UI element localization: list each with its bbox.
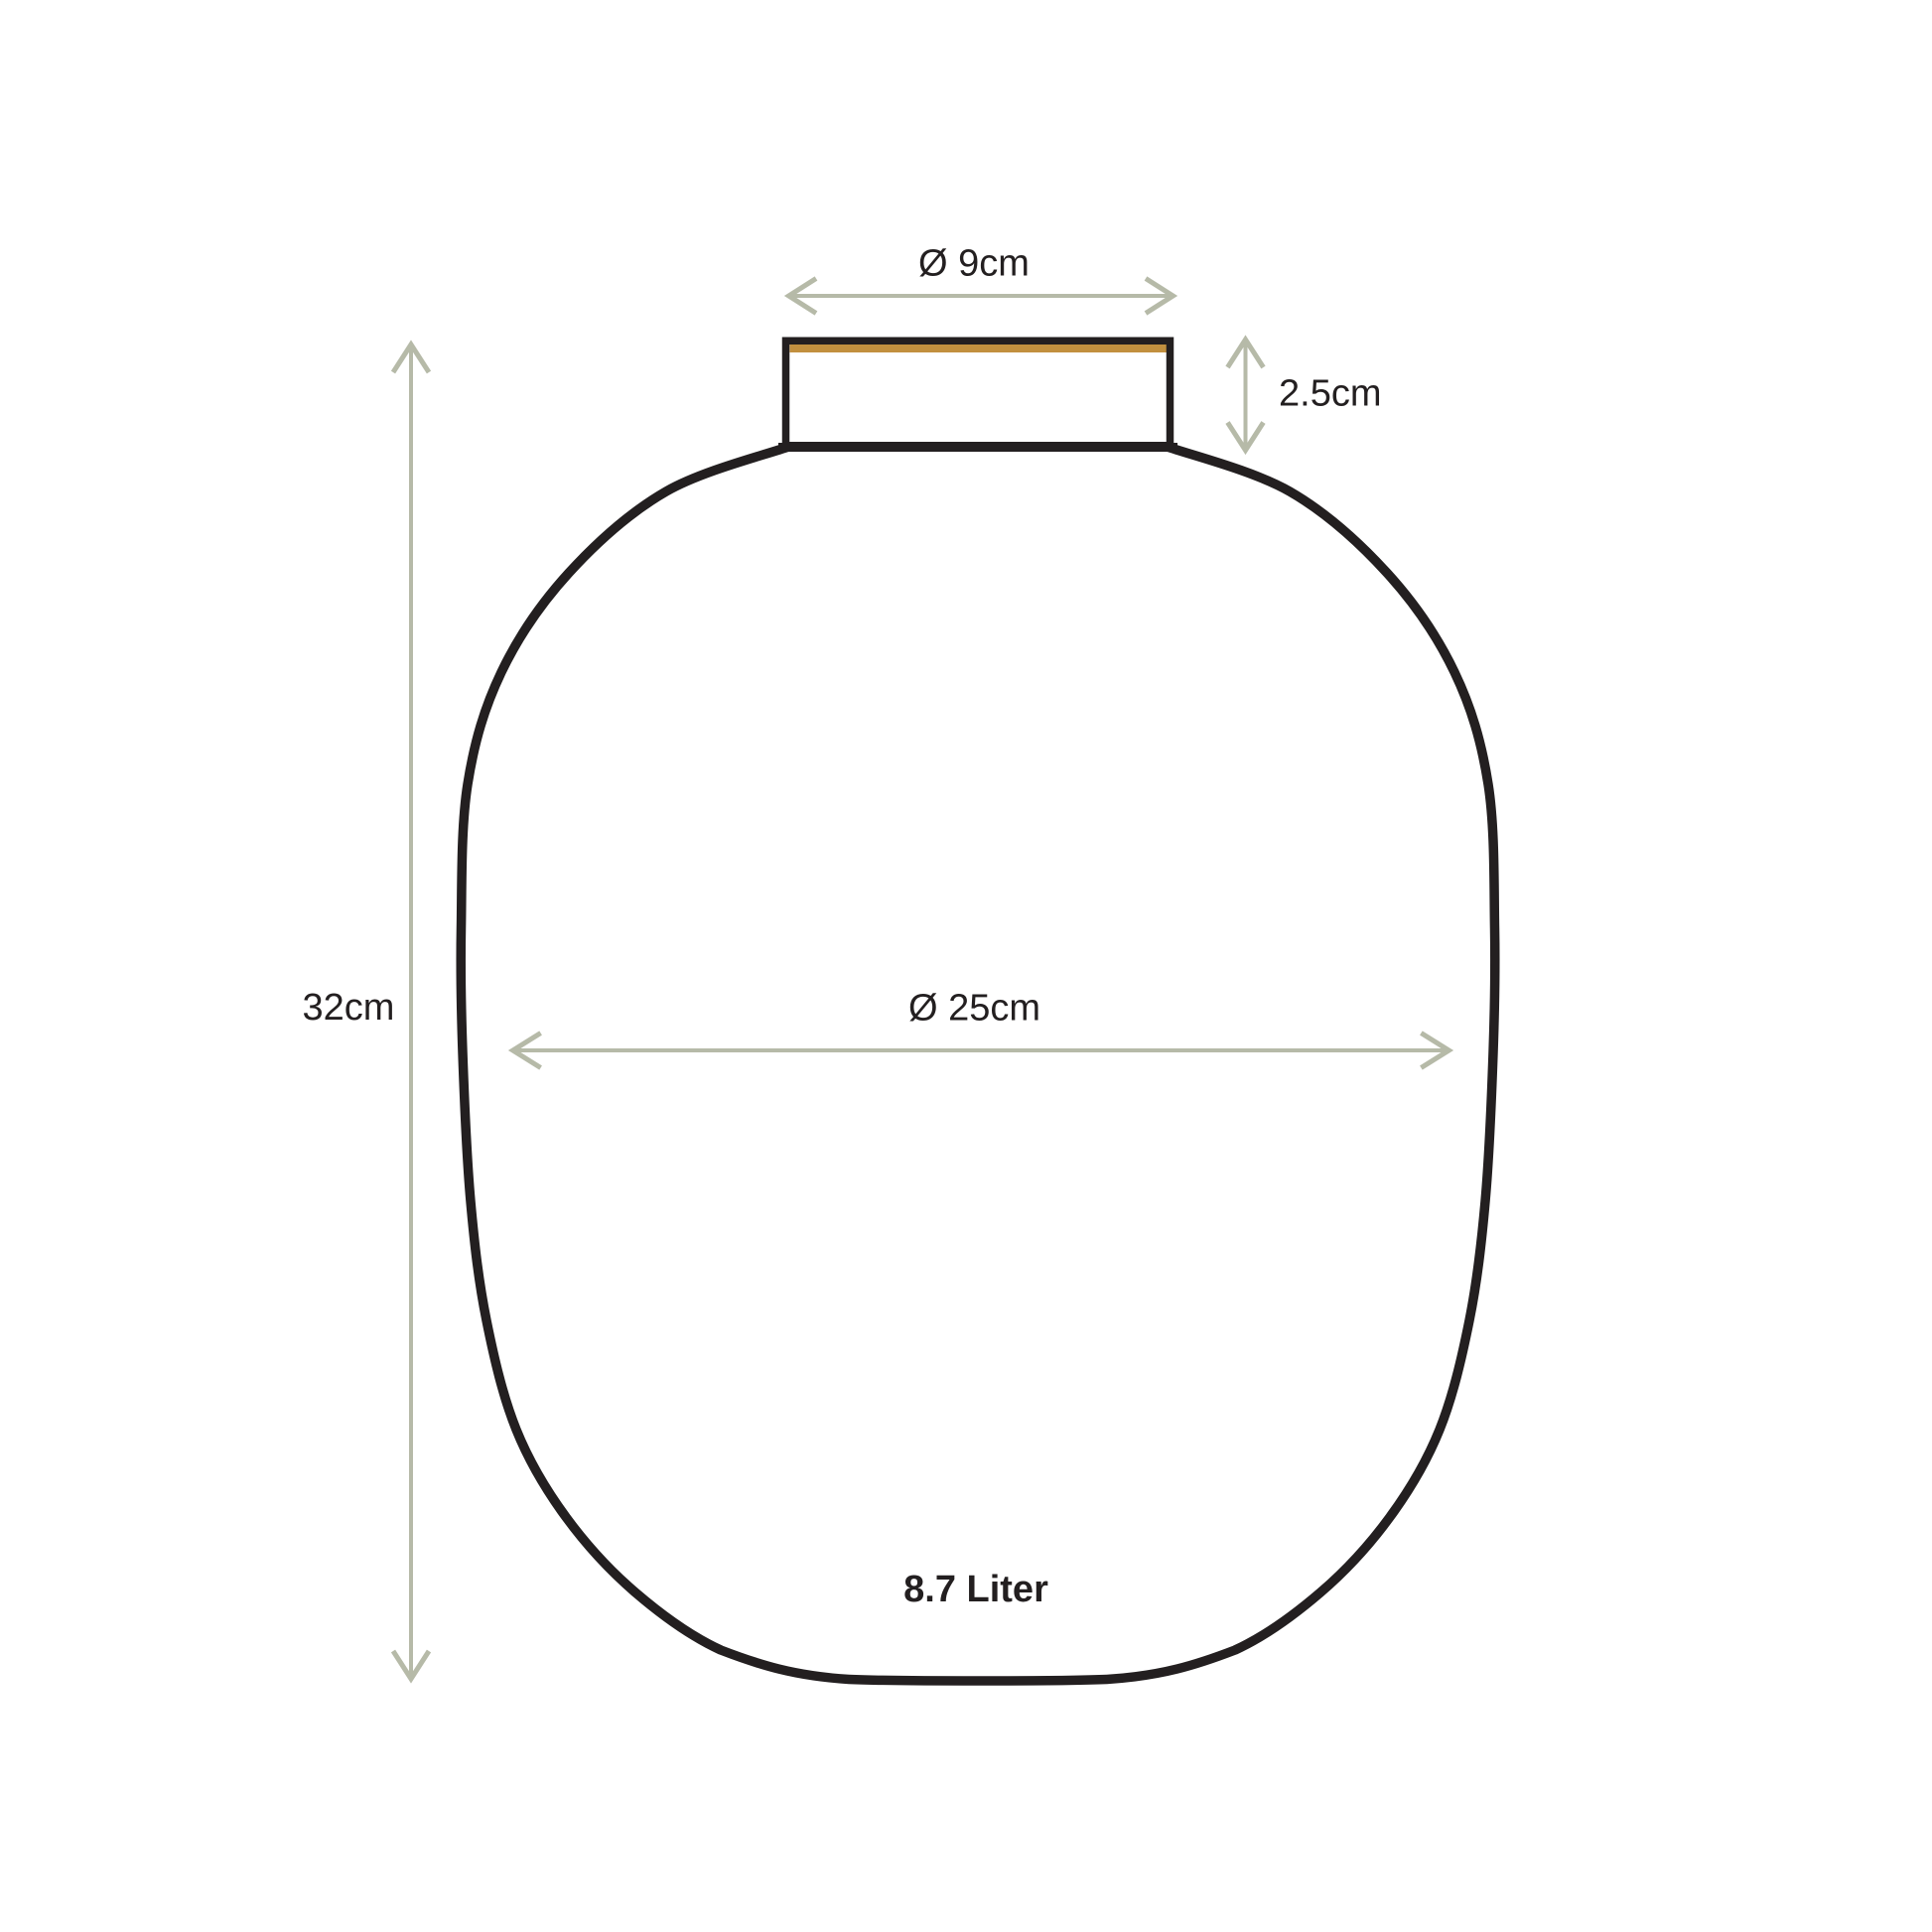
svg-text:8.7 Liter: 8.7 Liter xyxy=(903,1569,1048,1610)
svg-text:32cm: 32cm xyxy=(303,987,395,1029)
svg-text:Ø 9cm: Ø 9cm xyxy=(918,242,1030,284)
svg-text:Ø 25cm: Ø 25cm xyxy=(908,987,1040,1029)
svg-text:2.5cm: 2.5cm xyxy=(1279,372,1381,414)
